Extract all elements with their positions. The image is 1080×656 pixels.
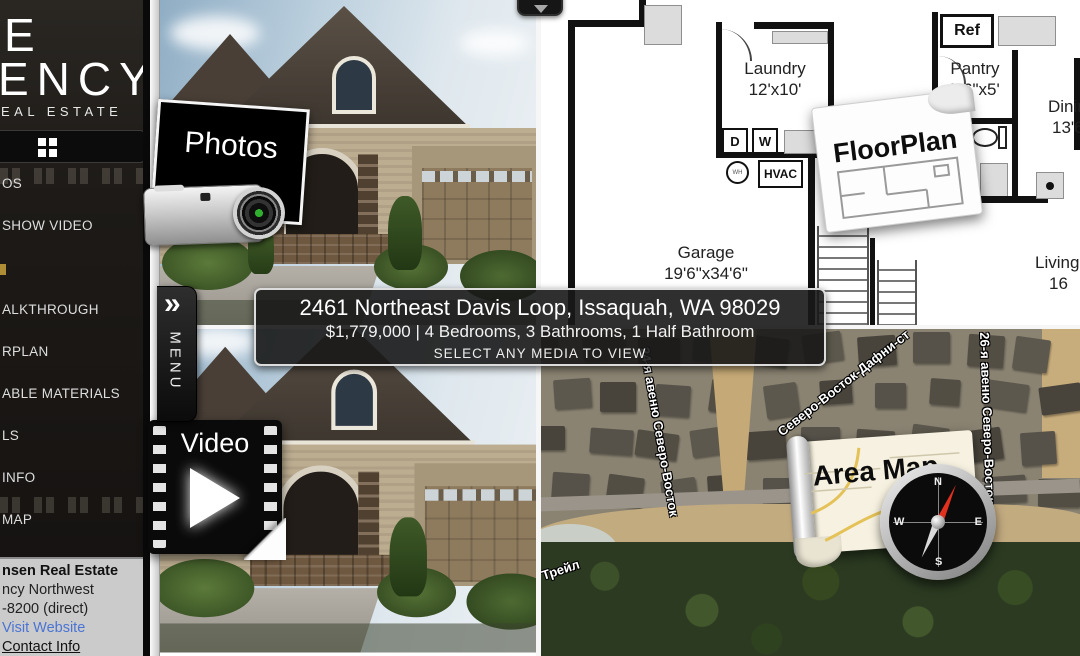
play-icon — [190, 468, 240, 528]
map-house-roof — [913, 332, 950, 363]
floorplan-wall — [568, 20, 575, 328]
camera-icon — [143, 184, 265, 246]
hvac-box: HVAC — [758, 160, 803, 188]
sidebar-item-map[interactable]: MAP — [0, 512, 143, 532]
door-swing-arc — [720, 29, 752, 61]
property-address: 2461 Northeast Davis Loop, Issaquah, WA … — [256, 295, 824, 321]
filmstrip: Video — [148, 420, 282, 554]
map-house-roof — [929, 378, 961, 406]
agent-contact-card: nsen Real Estate ncy Northwest -8200 (di… — [0, 557, 148, 656]
floorplan-paper: FloorPlan — [811, 89, 983, 233]
sidebar-item-partial[interactable] — [0, 260, 143, 280]
shrub — [388, 196, 422, 270]
sidebar-item-info[interactable]: INFO — [0, 470, 143, 490]
counter — [772, 31, 828, 44]
compass-south: S — [935, 556, 942, 568]
photos-label: Photos — [157, 124, 305, 168]
washer-box: W — [752, 128, 778, 154]
cloud — [460, 30, 530, 56]
water-heater: WH — [726, 161, 749, 184]
camera-lens — [232, 186, 286, 240]
map-house-roof — [553, 378, 592, 410]
logo-text: EAL ESTATE — [1, 104, 122, 119]
sidebar-menu: OS SHOW VIDEO ALKTHROUGH RPLAN ABLE MATE… — [0, 176, 143, 554]
map-house-roof — [540, 426, 565, 450]
stair-rail — [870, 238, 875, 328]
room-name: Laundry — [716, 58, 834, 79]
room-label-living: Living 16 — [1035, 252, 1080, 294]
compass-face: N E S W — [889, 473, 987, 571]
map-house-roof — [600, 382, 636, 412]
property-banner: 2461 Northeast Davis Loop, Issaquah, WA … — [254, 288, 826, 366]
grid-icon — [38, 138, 46, 146]
staircase — [877, 260, 917, 328]
garage-door-windows — [422, 171, 532, 182]
agent-name: nsen Real Estate — [2, 562, 148, 581]
areamap-icon[interactable]: Area Map N E S W — [788, 420, 992, 582]
thumbnail-grid-button[interactable] — [0, 130, 146, 163]
map-house-roof — [589, 428, 634, 456]
camera-shutter — [154, 185, 184, 192]
floorplan-icon[interactable]: FloorPlan — [811, 89, 983, 233]
ground — [160, 623, 540, 652]
floorplan-media-tile[interactable]: Laundry 12'x10' D W WH HVAC Garage 19'6"… — [540, 0, 1080, 328]
video-icon[interactable]: Video — [146, 418, 288, 566]
floorplan-wall — [568, 20, 646, 27]
double-chevron-right-icon: » — [164, 287, 181, 321]
camera-viewfinder — [200, 193, 210, 201]
sidebar-item-details[interactable]: LS — [0, 428, 143, 448]
agent-phone: -8200 (direct) — [2, 600, 148, 619]
map-house-roof — [1012, 336, 1051, 374]
room-label-dining: Dining 13'6 — [1048, 96, 1080, 138]
agency-name: ncy Northwest — [2, 581, 148, 600]
logo-text: ENCY — [0, 52, 150, 106]
floorplan-wall — [754, 22, 834, 29]
compass-east: E — [975, 516, 982, 528]
menu-tab-label: MENU — [167, 330, 184, 394]
sidebar-item-photos[interactable]: OS — [0, 176, 143, 196]
map-house-roof — [1038, 382, 1080, 416]
room-name: Garage — [640, 242, 772, 263]
map-house-roof — [875, 383, 906, 408]
shrub — [390, 517, 427, 596]
map-house-roof — [1020, 431, 1057, 466]
room-dims: 13'6 — [1048, 117, 1080, 138]
photos-icon[interactable]: Photos — [148, 98, 316, 258]
brand-logo: E ENCY EAL ESTATE — [0, 0, 143, 126]
property-price-beds: $1,779,000 | 4 Bedrooms, 3 Bathrooms, 1 … — [256, 322, 824, 342]
post-dot — [1046, 182, 1054, 190]
refrigerator-box: Ref — [940, 14, 994, 48]
dryer-box: D — [722, 128, 748, 154]
room-dims: 19'6"x34'6" — [640, 263, 772, 284]
property-media-page: Laundry 12'x10' D W WH HVAC Garage 19'6"… — [0, 0, 1080, 656]
toilet — [998, 126, 1007, 149]
visit-website-link[interactable]: Visit Website — [2, 620, 85, 636]
contact-info-link[interactable]: Contact Info — [2, 639, 80, 655]
compass-north: N — [934, 476, 942, 488]
video-label: Video — [148, 428, 282, 459]
room-name: Pantry — [932, 58, 1018, 79]
sidebar-item-printable-materials[interactable]: ABLE MATERIALS — [0, 386, 143, 406]
cloud — [170, 16, 260, 50]
floorplan-fixture — [644, 5, 682, 45]
compass-west: W — [894, 516, 904, 528]
room-dims: 12'x10' — [716, 79, 834, 100]
compass-icon: N E S W — [880, 464, 996, 580]
garage-door-windows — [425, 489, 539, 500]
menu-slide-tab[interactable]: » MENU — [157, 286, 197, 422]
page-curl — [244, 518, 286, 560]
top-pull-tab[interactable] — [517, 0, 563, 16]
sidebar-item-slideshow-video[interactable]: SHOW VIDEO — [0, 218, 143, 238]
gable-window — [332, 56, 376, 114]
chevron-down-icon — [534, 5, 548, 13]
gable-window — [331, 370, 377, 430]
sidebar-item-floorplan[interactable]: RPLAN — [0, 344, 143, 364]
room-label-laundry: Laundry 12'x10' — [716, 58, 834, 100]
partial-icon — [0, 264, 6, 275]
room-name: Dining — [1048, 96, 1080, 117]
room-dims: 16 — [1035, 273, 1080, 294]
room-name: Living — [1035, 252, 1080, 273]
sink-cabinet — [980, 163, 1008, 197]
compass-hub — [931, 515, 945, 529]
room-label-garage: Garage 19'6"x34'6" — [640, 242, 772, 284]
select-media-hint: SELECT ANY MEDIA TO VIEW — [256, 346, 824, 361]
sidebar-item-walkthrough[interactable]: ALKTHROUGH — [0, 302, 143, 322]
counter — [998, 16, 1056, 46]
